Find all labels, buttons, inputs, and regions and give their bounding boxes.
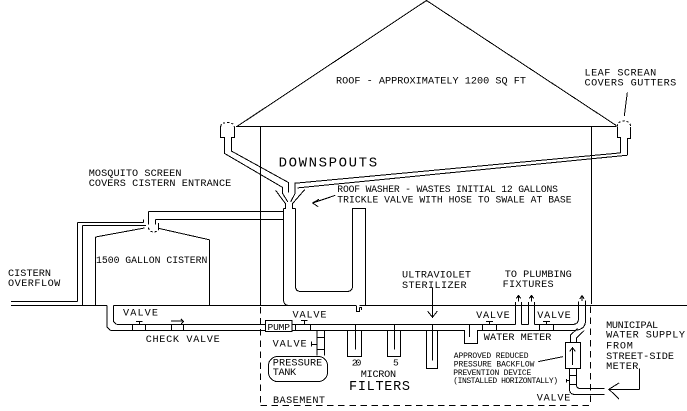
- svg-text:STERILIZER: STERILIZER: [402, 281, 467, 292]
- svg-text:5: 5: [393, 357, 399, 368]
- svg-text:TANK: TANK: [273, 368, 297, 379]
- svg-text:1500 GALLON CISTERN: 1500 GALLON CISTERN: [96, 255, 208, 266]
- svg-text:COVERS CISTERN ENTRANCE: COVERS CISTERN ENTRANCE: [89, 179, 232, 190]
- svg-text:VALVE: VALVE: [537, 393, 571, 404]
- svg-text:DOWNSPOUTS: DOWNSPOUTS: [279, 156, 378, 172]
- svg-text:FILTERS: FILTERS: [349, 380, 410, 395]
- svg-text:COVERS GUTTERS: COVERS GUTTERS: [585, 78, 677, 89]
- svg-text:PUMP: PUMP: [268, 322, 291, 333]
- svg-text:WATER METER: WATER METER: [484, 333, 552, 344]
- svg-text:CHECK VALVE: CHECK VALVE: [146, 335, 220, 346]
- svg-text:METER: METER: [606, 362, 638, 373]
- svg-text:VALVE: VALVE: [537, 311, 571, 322]
- svg-text:FIXTURES: FIXTURES: [503, 280, 554, 291]
- svg-text:WATER SUPPLY: WATER SUPPLY: [606, 331, 685, 342]
- svg-text:(INSTALLED HORIZONTALLY): (INSTALLED HORIZONTALLY): [453, 377, 558, 386]
- svg-text:VALVE: VALVE: [293, 311, 327, 322]
- svg-text:20: 20: [352, 357, 362, 368]
- svg-text:VALVE: VALVE: [273, 340, 307, 351]
- svg-text:VALVE: VALVE: [476, 311, 510, 322]
- svg-text:TRICKLE VALVE WITH HOSE TO SWA: TRICKLE VALVE WITH HOSE TO SWALE AT BASE: [337, 195, 571, 206]
- svg-text:BASEMENT: BASEMENT: [273, 396, 325, 407]
- svg-text:VALVE: VALVE: [123, 309, 158, 320]
- svg-text:OVERFLOW: OVERFLOW: [8, 279, 61, 290]
- svg-text:ULTRAVIOLET: ULTRAVIOLET: [402, 271, 471, 282]
- svg-text:ROOF WASHER - WASTES INITIAL 1: ROOF WASHER - WASTES INITIAL 12 GALLONS: [337, 184, 558, 195]
- svg-text:ROOF - APPROXIMATELY 1200 SQ F: ROOF - APPROXIMATELY 1200 SQ FT: [336, 76, 526, 87]
